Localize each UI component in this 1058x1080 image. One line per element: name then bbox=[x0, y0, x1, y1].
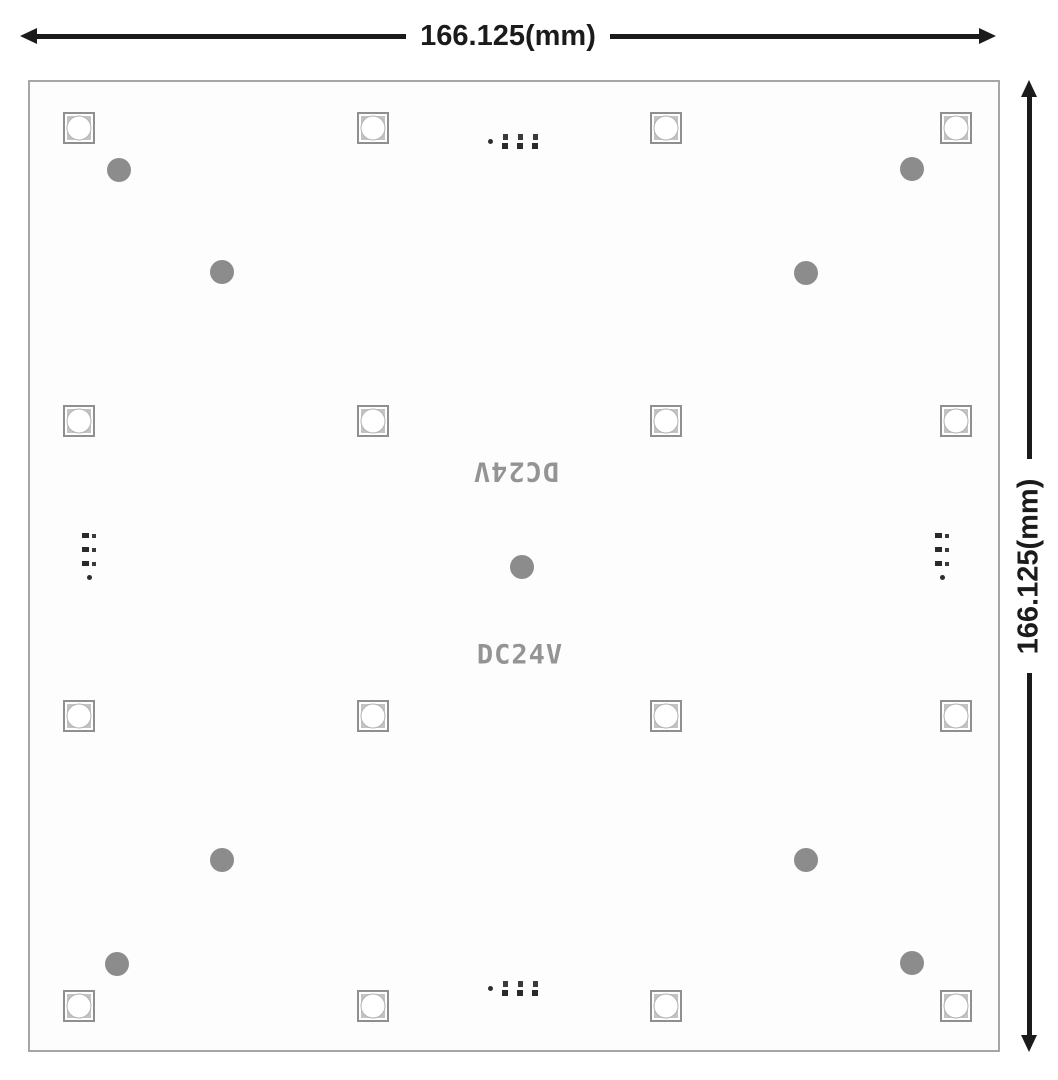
led-footprint bbox=[357, 700, 389, 732]
mounting-hole bbox=[510, 555, 534, 579]
arrowhead-up-icon bbox=[1021, 80, 1037, 97]
led-footprint bbox=[650, 112, 682, 144]
led-footprint bbox=[63, 405, 95, 437]
mounting-hole bbox=[900, 157, 924, 181]
led-footprint bbox=[650, 700, 682, 732]
silkscreen-dc24v: DC24V bbox=[477, 640, 563, 671]
dimension-line bbox=[610, 34, 979, 39]
solder-pad-pair bbox=[82, 547, 96, 552]
connector-pads-right bbox=[935, 533, 949, 580]
dimension-annotation-horizontal: 166.125(mm) bbox=[20, 20, 996, 52]
pin1-dot-icon bbox=[87, 575, 92, 580]
mounting-hole bbox=[210, 848, 234, 872]
led-footprint bbox=[940, 700, 972, 732]
mounting-hole bbox=[105, 952, 129, 976]
led-footprint bbox=[357, 112, 389, 144]
solder-pad-pair bbox=[517, 134, 523, 149]
mounting-hole bbox=[107, 158, 131, 182]
solder-pad-pair bbox=[935, 533, 949, 538]
dimension-label-vertical: 166.125(mm) bbox=[1013, 464, 1046, 668]
led-footprint bbox=[650, 990, 682, 1022]
pcb-board-outline: DC24V DC24V bbox=[28, 80, 1000, 1052]
solder-pad-pair bbox=[532, 134, 538, 149]
solder-pad-pair bbox=[502, 981, 508, 996]
led-footprint bbox=[357, 990, 389, 1022]
solder-pad-pair bbox=[82, 533, 96, 538]
arrowhead-left-icon bbox=[20, 28, 37, 44]
led-footprint bbox=[63, 990, 95, 1022]
led-module-dimension-drawing: 166.125(mm) 166.125(mm) DC24V DC24V bbox=[0, 0, 1058, 1080]
pin1-dot-icon bbox=[488, 139, 493, 144]
pin1-dot-icon bbox=[940, 575, 945, 580]
arrowhead-down-icon bbox=[1021, 1035, 1037, 1052]
connector-pads-left bbox=[82, 533, 96, 580]
led-footprint bbox=[940, 405, 972, 437]
led-footprint bbox=[940, 112, 972, 144]
dimension-label-horizontal: 166.125(mm) bbox=[406, 20, 610, 53]
dimension-line bbox=[1027, 97, 1032, 459]
arrowhead-right-icon bbox=[979, 28, 996, 44]
dimension-line bbox=[37, 34, 406, 39]
pin1-dot-icon bbox=[488, 986, 493, 991]
dimension-line bbox=[1027, 673, 1032, 1035]
led-footprint bbox=[650, 405, 682, 437]
led-footprint bbox=[63, 112, 95, 144]
silkscreen-dc24v-rotated: DC24V bbox=[473, 456, 559, 487]
connector-pads-top bbox=[488, 134, 538, 149]
solder-pad-pair bbox=[935, 547, 949, 552]
led-footprint bbox=[940, 990, 972, 1022]
dimension-annotation-vertical: 166.125(mm) bbox=[1013, 80, 1045, 1052]
led-footprint bbox=[63, 700, 95, 732]
led-footprint bbox=[357, 405, 389, 437]
mounting-hole bbox=[210, 260, 234, 284]
mounting-hole bbox=[794, 848, 818, 872]
solder-pad-pair bbox=[935, 561, 949, 566]
solder-pad-pair bbox=[532, 981, 538, 996]
solder-pad-pair bbox=[502, 134, 508, 149]
mounting-hole bbox=[794, 261, 818, 285]
solder-pad-pair bbox=[82, 561, 96, 566]
solder-pad-pair bbox=[517, 981, 523, 996]
connector-pads-bottom bbox=[488, 981, 538, 996]
mounting-hole bbox=[900, 951, 924, 975]
